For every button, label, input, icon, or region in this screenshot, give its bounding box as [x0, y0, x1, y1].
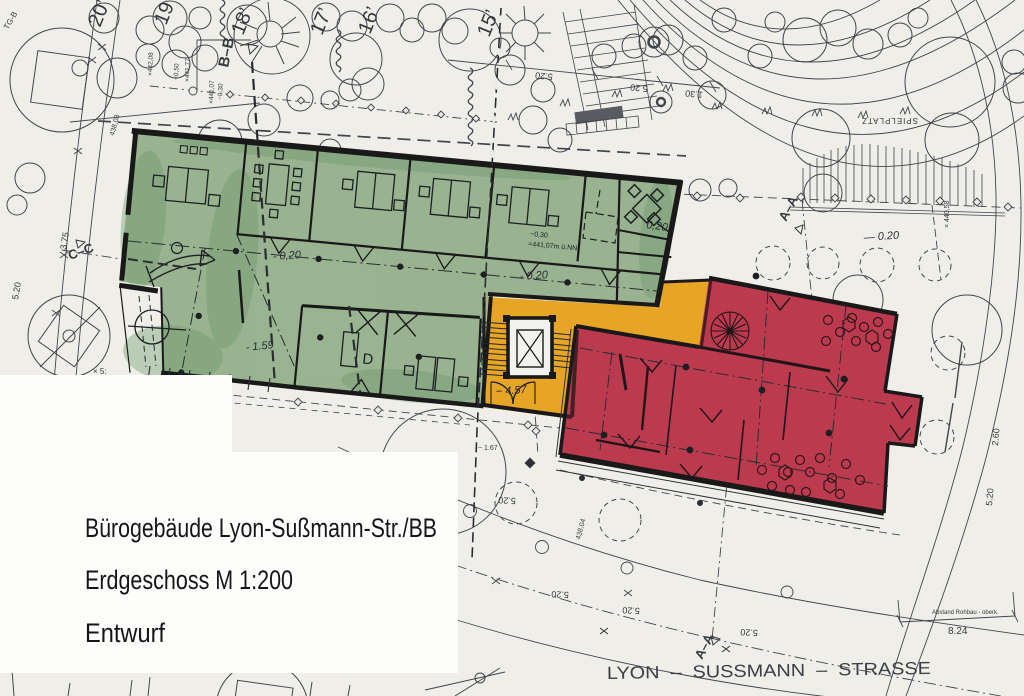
svg-text:Entwurf: Entwurf: [85, 618, 165, 648]
svg-text:Bürogebäude Lyon-Sußmann-Str./: Bürogebäude Lyon-Sußmann-Str./BB: [85, 513, 437, 543]
svg-text:Erdgeschoss M 1:200: Erdgeschoss M 1:200: [85, 565, 293, 595]
